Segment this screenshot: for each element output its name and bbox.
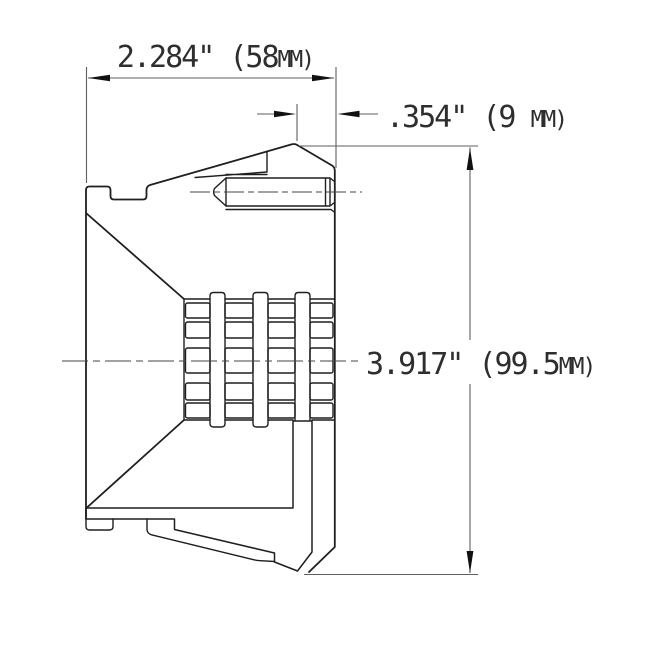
part-view xyxy=(86,144,335,572)
width-dim-label: 2.284" (58MM) xyxy=(117,40,313,75)
drawing-canvas: 2.284" (58MM) .354" (9 MM) 3.917" (99.5M… xyxy=(0,0,650,650)
lip-edge xyxy=(147,519,275,562)
lower-cone-edge xyxy=(87,420,184,508)
width-arrowhead-left xyxy=(88,75,110,81)
dimension-diameter: 3.917" (99.5MM) xyxy=(299,146,594,575)
set-screw xyxy=(214,178,335,213)
dimension-width: 2.284" (58MM) xyxy=(87,40,337,183)
tread-top-tabs xyxy=(210,293,310,300)
metal-lip xyxy=(86,519,275,562)
diameter-dim-label: 3.917" (99.5MM) xyxy=(366,347,594,382)
screw-hole-bottom xyxy=(226,210,335,213)
diameter-arrowhead-bottom xyxy=(467,551,474,573)
width-arrowhead-right xyxy=(312,75,334,81)
width-extension-lines xyxy=(87,67,337,183)
flat-edge xyxy=(195,153,267,178)
offset-arrowhead-right xyxy=(274,111,296,117)
technical-drawing: 2.284" (58MM) .354" (9 MM) 3.917" (99.5M… xyxy=(0,0,650,650)
tread-block xyxy=(184,293,335,428)
rubber-section-hatch xyxy=(86,421,312,571)
tread-bottom-tabs xyxy=(210,420,268,427)
diameter-arrowhead-top xyxy=(467,148,474,170)
upper-cone-edge xyxy=(86,213,184,299)
offset-dim-label: .354" (9 MM) xyxy=(386,100,566,135)
offset-arrowhead-left xyxy=(338,111,360,117)
lip-tab xyxy=(86,519,113,530)
dimension-offset: .354" (9 MM) xyxy=(257,100,566,141)
